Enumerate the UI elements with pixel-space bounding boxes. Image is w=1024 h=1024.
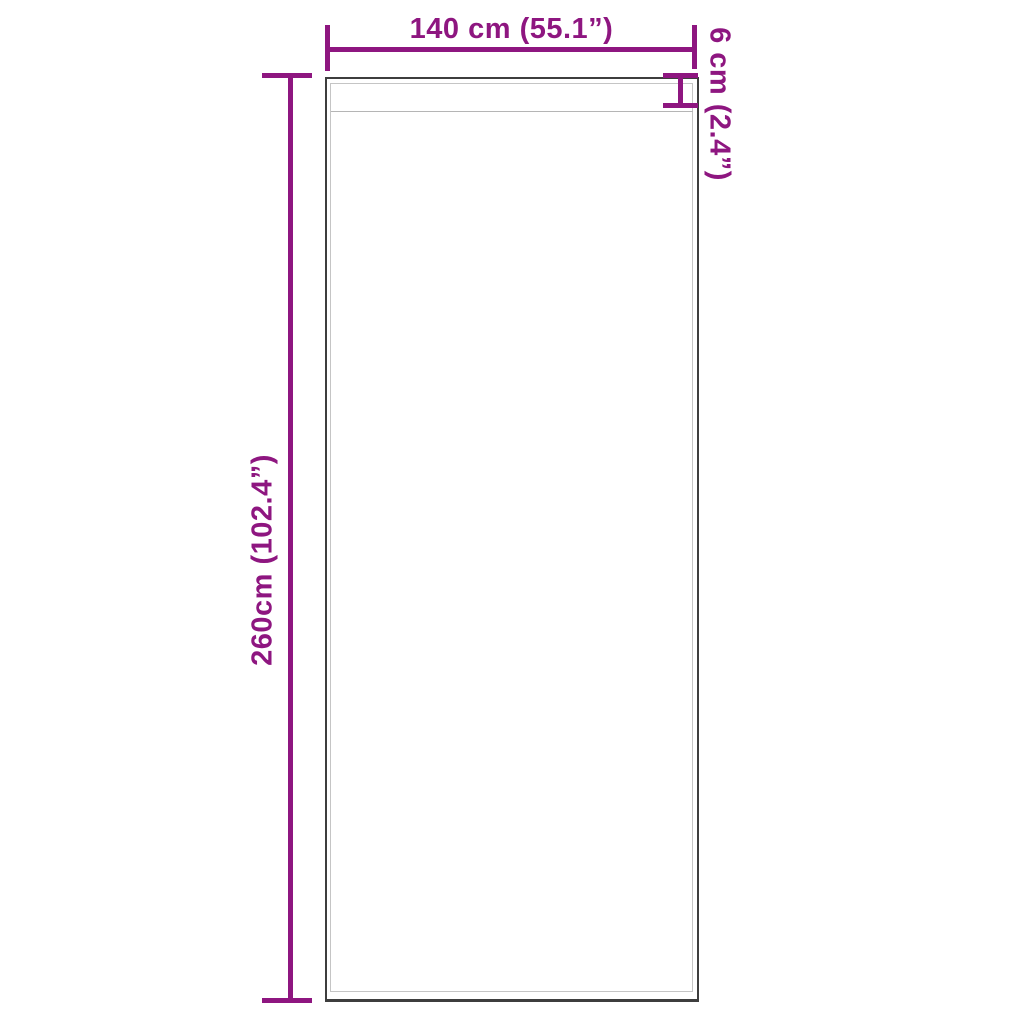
pocket-dimension-label: 6 cm (2.4”) bbox=[703, 27, 736, 181]
pocket-dimension-cap-bottom bbox=[663, 103, 698, 108]
height-dimension-cap-top bbox=[262, 73, 312, 78]
curtain-panel-inner-edge bbox=[330, 83, 693, 992]
pocket-dimension-cap-top bbox=[663, 73, 698, 78]
rod-pocket-seam-line bbox=[331, 111, 693, 112]
dimension-diagram: 140 cm (55.1”) 260cm (102.4”) 6 cm (2.4”… bbox=[0, 0, 1024, 1024]
height-dimension-cap-bottom bbox=[262, 998, 312, 1003]
width-dimension-label: 140 cm (55.1”) bbox=[325, 13, 698, 46]
width-dimension-line bbox=[325, 47, 697, 52]
height-dimension-line bbox=[288, 73, 293, 1003]
height-dimension-label: 260cm (102.4”) bbox=[247, 454, 280, 666]
